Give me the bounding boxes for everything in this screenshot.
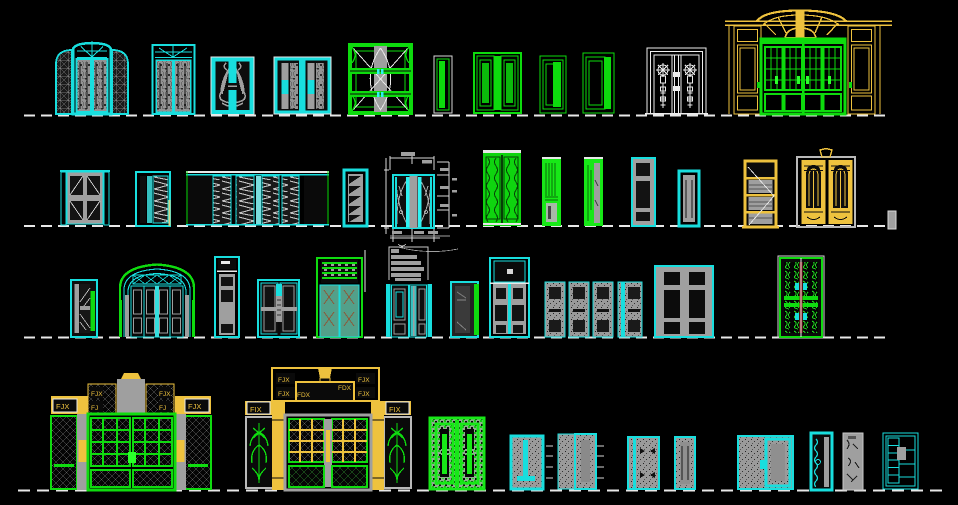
svg-text:FDX: FDX [338,385,352,392]
svg-text:FJX: FJX [358,377,370,384]
svg-text:FJX: FJX [188,402,201,411]
svg-text:FIX: FIX [389,405,401,414]
svg-text:FJX: FJX [91,391,103,398]
svg-text:FJ: FJ [91,405,98,412]
svg-text:FIX: FIX [250,405,262,414]
svg-text:FJX: FJX [278,391,290,398]
svg-text:FJX: FJX [56,402,69,411]
svg-text:FJX: FJX [159,391,171,398]
svg-text:FJX: FJX [278,377,290,384]
svg-text:FDX: FDX [297,392,311,399]
svg-text:FJ: FJ [159,405,166,412]
svg-text:FJX: FJX [358,391,370,398]
